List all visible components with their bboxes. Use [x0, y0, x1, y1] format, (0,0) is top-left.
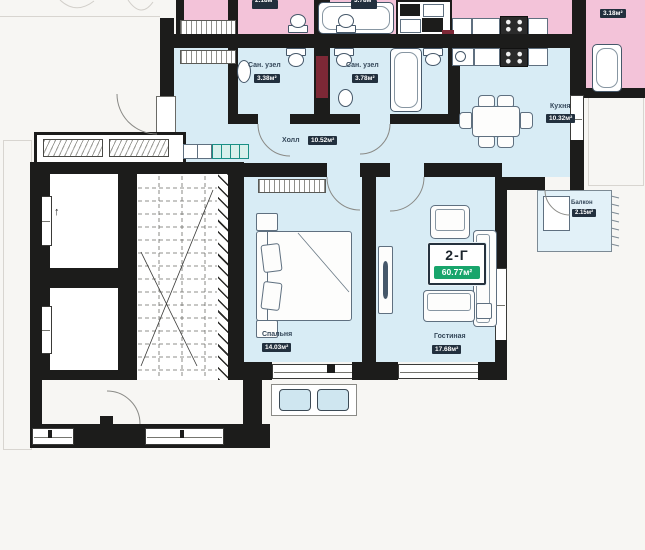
window — [272, 364, 354, 379]
ac-unit — [279, 389, 311, 411]
stair-steps-edge — [218, 174, 228, 380]
wall — [502, 177, 545, 190]
sofa — [423, 290, 475, 322]
room-label: Гостиная — [434, 333, 466, 340]
coffee-table — [476, 303, 492, 319]
neighbor-area-badge: 3.78м² — [351, 0, 377, 9]
wall — [570, 140, 584, 177]
wall — [495, 340, 507, 362]
unit-badge: 2-Г 60.77м² — [428, 243, 486, 285]
wall — [478, 362, 507, 380]
area-badge: 10.52м² — [308, 136, 337, 145]
wall — [290, 114, 360, 124]
stove — [500, 16, 528, 35]
pillow — [260, 243, 282, 273]
chair — [497, 136, 514, 148]
room-label: Балкон — [571, 200, 593, 206]
chair — [478, 136, 495, 148]
site-outline-left — [3, 140, 32, 450]
room-label: Спальня — [262, 331, 292, 338]
kitchen-counter — [474, 48, 500, 66]
area-badge: 3.38м² — [254, 74, 280, 83]
wall — [352, 362, 398, 380]
neighbor-area-badge: 3.18м² — [600, 9, 626, 18]
kitchen-counter — [472, 18, 500, 35]
toilet — [288, 14, 308, 33]
window — [398, 364, 480, 379]
shaft-cell — [422, 18, 443, 32]
bidet — [423, 48, 443, 66]
wall — [360, 163, 390, 177]
stove — [500, 48, 528, 67]
wall — [228, 163, 244, 380]
room-label: Холл — [282, 137, 300, 144]
area-badge: 2.15м² — [572, 209, 596, 217]
shaft-cell — [423, 4, 444, 17]
dining-table — [472, 106, 520, 137]
area-badge: 17.68м² — [432, 345, 461, 354]
shaft-cell — [400, 19, 421, 33]
wall — [228, 114, 258, 124]
wall — [570, 48, 584, 95]
window — [145, 428, 224, 445]
toilet — [286, 48, 306, 67]
tv — [383, 261, 388, 299]
site-outline-top — [0, 16, 160, 17]
chair — [497, 95, 514, 107]
elevator-1-cab — [50, 174, 118, 268]
lobby-door-leaf — [100, 416, 113, 425]
wall — [30, 162, 42, 448]
vent-grille — [43, 139, 103, 157]
entrance-door — [156, 96, 176, 136]
shaft-red-wall — [316, 56, 328, 98]
entrance-door-arc — [117, 94, 157, 134]
hall-cabinet — [197, 144, 212, 159]
window-mullion — [48, 430, 52, 438]
wall — [123, 162, 244, 174]
hall-cabinet — [180, 50, 236, 64]
elevator-2-cab — [50, 288, 118, 370]
kitchen-counter — [528, 48, 548, 66]
window-mullion — [180, 430, 184, 438]
balcony-cabinet — [543, 196, 570, 231]
hall-cabinet — [239, 144, 249, 159]
area-badge: 10.32м² — [546, 114, 575, 123]
wall — [160, 34, 586, 48]
wall — [362, 177, 376, 362]
tv-stand — [378, 246, 393, 314]
staircase — [137, 174, 228, 380]
wardrobe — [180, 20, 236, 35]
neighbor-area-badge: 2.18м² — [252, 0, 278, 9]
pillow — [260, 281, 282, 311]
kitchen-counter — [452, 18, 472, 35]
decorative-arcs — [60, 0, 153, 10]
wall — [424, 163, 502, 177]
window-mullion — [327, 364, 335, 373]
unit-id: 2-Г — [434, 248, 480, 263]
armchair — [430, 205, 470, 239]
nightstand — [256, 213, 278, 231]
chair — [478, 95, 495, 107]
bathtub — [390, 48, 422, 112]
unit-area: 60.77м² — [434, 266, 480, 279]
site-outline-right — [588, 96, 644, 186]
floor-plan: 2.18м² 3.78м² 3.18м² ↑ — [0, 0, 645, 550]
wall — [390, 114, 460, 124]
ac-unit — [317, 389, 349, 411]
bathtub — [592, 44, 622, 92]
balcony-hatch — [611, 196, 619, 246]
chair — [520, 112, 533, 129]
elevator-up-arrow: ↑ — [54, 206, 60, 218]
wall — [243, 378, 262, 424]
armchair-seat — [435, 209, 465, 231]
room-label: Сан. узел — [346, 62, 379, 69]
bed — [256, 231, 352, 321]
shaft-cell — [400, 4, 420, 16]
area-badge: 3.78м² — [352, 74, 378, 83]
room-label: Кухня — [550, 103, 570, 110]
wall — [570, 177, 584, 190]
sink — [338, 89, 353, 107]
area-badge: 14.03м² — [262, 343, 291, 352]
wall — [160, 18, 174, 96]
sofa-back — [427, 293, 471, 311]
vent-grille — [109, 139, 169, 157]
room-label: Сан. узел — [248, 62, 281, 69]
sink — [455, 51, 466, 62]
chair — [459, 112, 472, 129]
wall — [123, 162, 137, 380]
wardrobe — [258, 179, 326, 193]
window — [32, 428, 74, 445]
hall-cabinet — [183, 144, 198, 159]
kitchen-counter — [528, 18, 548, 35]
toilet — [336, 14, 356, 33]
